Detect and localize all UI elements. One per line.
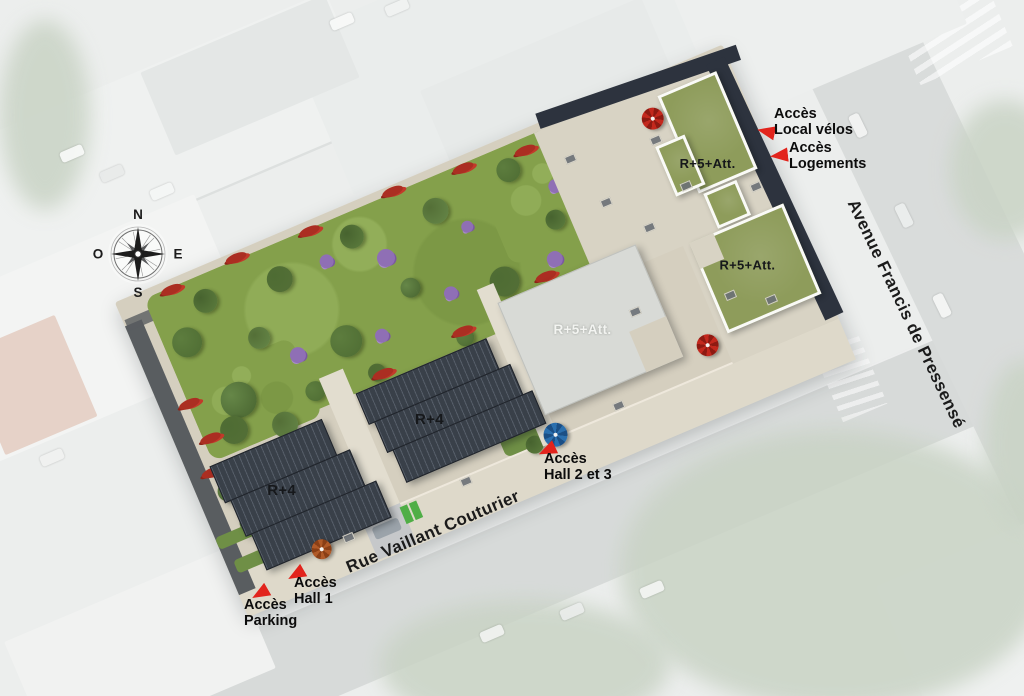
compass-rose: N S O E bbox=[88, 202, 188, 302]
terrace-furniture bbox=[564, 153, 577, 165]
access-label-local-velos: Accès Local vélos bbox=[774, 107, 853, 138]
access-label-line: Accès bbox=[294, 576, 337, 592]
terrace-furniture bbox=[600, 197, 613, 209]
access-label-line: Hall 2 et 3 bbox=[544, 468, 612, 484]
access-label-line: Accès bbox=[544, 452, 612, 468]
parasol-icon bbox=[693, 331, 722, 360]
vehicle bbox=[39, 448, 65, 468]
terrace-furniture bbox=[643, 222, 656, 234]
compass-letter-east: E bbox=[173, 247, 182, 262]
page-background: R+5+Att. R+5+Att. R+5+Att. R+4 R+4 bbox=[0, 0, 1024, 696]
access-label-line: Hall 1 bbox=[294, 592, 337, 608]
parasol-icon bbox=[540, 419, 571, 450]
terrace-furniture bbox=[765, 294, 778, 306]
access-label-line: Accès bbox=[774, 107, 853, 123]
access-label-parking: Accès Parking bbox=[244, 598, 297, 629]
terrace-furniture bbox=[342, 532, 355, 544]
terrace-furniture bbox=[629, 306, 642, 318]
access-label-line: Accès bbox=[244, 598, 297, 614]
terrace-furniture bbox=[724, 290, 737, 302]
compass-letter-west: O bbox=[93, 247, 104, 262]
access-label-line: Local vélos bbox=[774, 123, 853, 139]
terrace-furniture bbox=[680, 180, 693, 192]
terrace-furniture bbox=[612, 400, 625, 412]
access-label-hall-2-3: Accès Hall 2 et 3 bbox=[544, 452, 612, 483]
compass-letter-north: N bbox=[133, 207, 143, 222]
compass-letter-south: S bbox=[133, 285, 142, 300]
tree-canopy bbox=[0, 20, 90, 210]
terrace-furniture bbox=[460, 476, 473, 488]
access-label-line: Accès bbox=[789, 141, 866, 157]
terrace-furniture bbox=[649, 134, 662, 146]
parasol-icon bbox=[309, 536, 335, 562]
access-label-line: Logements bbox=[789, 157, 866, 173]
access-label-hall-1: Accès Hall 1 bbox=[294, 576, 337, 607]
access-label-logements: Accès Logements bbox=[789, 141, 866, 172]
parasol-icon bbox=[638, 104, 667, 133]
terrace-furniture bbox=[749, 181, 762, 193]
access-label-line: Parking bbox=[244, 614, 297, 630]
